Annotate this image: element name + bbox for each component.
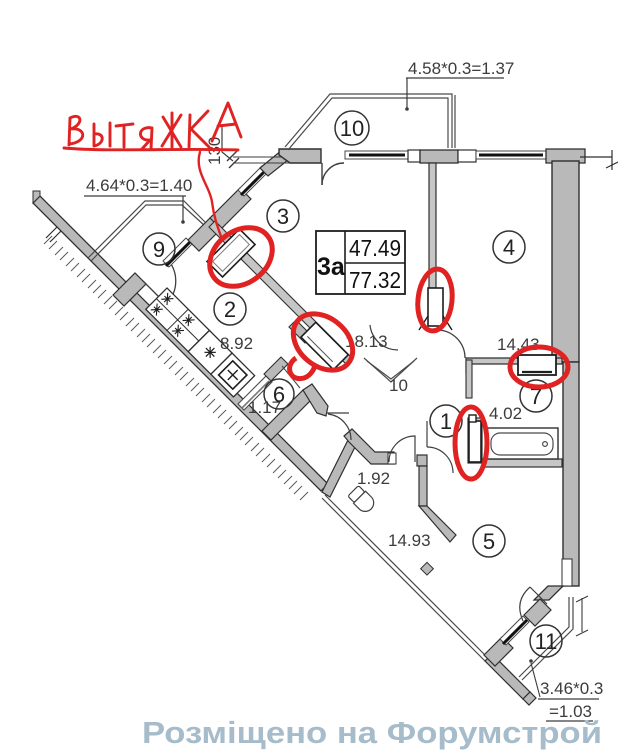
svg-text:6: 6 xyxy=(273,382,285,407)
svg-text:9: 9 xyxy=(153,237,165,262)
svg-text:11: 11 xyxy=(535,629,558,654)
svg-text:8.92: 8.92 xyxy=(220,334,253,353)
svg-text:3.46*0.3: 3.46*0.3 xyxy=(540,679,603,698)
svg-text:1.92: 1.92 xyxy=(357,469,390,488)
svg-text:5: 5 xyxy=(483,529,495,554)
svg-text:4.02: 4.02 xyxy=(489,404,522,423)
svg-text:Розміщено на Форумстрой: Розміщено на Форумстрой xyxy=(142,715,602,750)
svg-text:4.64*0.3=1.40: 4.64*0.3=1.40 xyxy=(86,176,192,195)
svg-text:2: 2 xyxy=(224,297,236,322)
svg-text:3a: 3a xyxy=(317,253,346,281)
svg-text:77.32: 77.32 xyxy=(349,267,401,293)
svg-text:14.93: 14.93 xyxy=(388,531,431,550)
svg-text:1: 1 xyxy=(440,409,452,434)
svg-text:4.58*0.3=1.37: 4.58*0.3=1.37 xyxy=(408,59,514,78)
svg-text:47.49: 47.49 xyxy=(349,235,401,261)
svg-text:4: 4 xyxy=(503,235,515,260)
svg-text:3: 3 xyxy=(277,204,289,229)
svg-text:10: 10 xyxy=(389,376,408,395)
svg-text:10: 10 xyxy=(340,116,364,141)
